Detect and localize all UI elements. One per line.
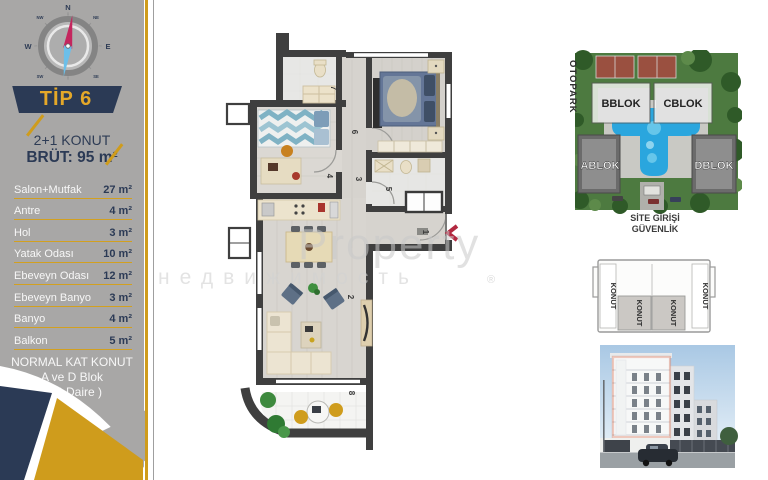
compass-icon: N S E W NE NW SE SW (22, 2, 114, 94)
otopark-label: OTOPARK (567, 60, 578, 114)
room-number-3: 3 (354, 177, 363, 182)
room-name: Salon+Mutfak (14, 184, 82, 196)
room-number-8: 8 (347, 391, 356, 396)
room-area: 12 m² (103, 270, 132, 282)
unit-type-label: TİP 6 (40, 88, 92, 111)
entrance-arrow-icon (448, 226, 457, 240)
room-number-4: 4 (325, 174, 334, 179)
corner-fan-decoration (0, 350, 156, 480)
room-name: Balkon (14, 335, 48, 347)
floor-key-plan: KONUT KONUT KONUT KONUT (588, 252, 720, 340)
compass-se: SE (93, 74, 99, 79)
block-a-label: ABLOK (580, 160, 619, 172)
key-konut-mid1: KONUT (635, 300, 644, 327)
building-render (598, 343, 738, 473)
compass-w: W (24, 42, 32, 51)
room-area: 3 m² (109, 292, 132, 304)
block-d-label: DBLOK (694, 160, 733, 172)
site-plan: BBLOK CBLOK ABLOK DBLOK OTOPARK SİTE GİR… (556, 50, 742, 242)
room-number-6: 6 (350, 130, 359, 135)
table-row: Antre 4 m² (14, 199, 132, 221)
security-label: GÜVENLİK (632, 224, 679, 234)
room-name: Ebeveyn Banyo (14, 292, 91, 304)
room-number-1: 1 (421, 230, 430, 235)
table-row: Yatak Odası 10 m² (14, 242, 132, 264)
table-row: Balkon 5 m² (14, 328, 132, 350)
compass-e: E (105, 42, 110, 51)
compass-nw: NW (37, 15, 44, 20)
room-number-5: 5 (384, 187, 393, 192)
key-konut-left: KONUT (609, 283, 618, 310)
unit-type-banner: TİP 6 (10, 86, 122, 113)
car (638, 449, 678, 462)
room-number-7: 7 (329, 86, 338, 91)
room-area: 4 m² (109, 205, 132, 217)
highlighted-facade (613, 357, 670, 437)
unit-subtitle: 2+1 KONUT (0, 132, 144, 148)
compass-ne: NE (93, 15, 99, 20)
divider-gold (145, 0, 148, 480)
room-name: Banyo (14, 313, 45, 325)
room-name: Yatak Odası (14, 248, 74, 260)
table-row: Banyo 4 m² (14, 307, 132, 329)
room-name: Ebeveyn Odası (14, 270, 89, 282)
compass-n: N (65, 3, 70, 12)
room-name: Hol (14, 227, 31, 239)
room-name: Antre (14, 205, 40, 217)
key-konut-mid2: KONUT (669, 300, 678, 327)
room-area: 10 m² (103, 248, 132, 260)
room-number-2: 2 (346, 295, 355, 300)
watermark-reg-icon: ® (487, 274, 495, 286)
room-area: 5 m² (109, 335, 132, 347)
divider-gray (153, 0, 154, 480)
compass-sw: SW (37, 74, 44, 79)
table-row: Hol 3 m² (14, 220, 132, 242)
room-area: 3 m² (109, 227, 132, 239)
table-row: Ebeveyn Odası 12 m² (14, 263, 132, 285)
table-row: Ebeveyn Banyo 3 m² (14, 285, 132, 307)
gross-area: BRÜT: 95 m² (0, 149, 144, 167)
key-konut-right: KONUT (701, 283, 710, 310)
floor-plan: 1 2 3 4 5 6 7 8 (215, 20, 475, 465)
site-entrance-label: SİTE GİRİŞİ (630, 213, 680, 223)
brochure-page: N S E W NE NW SE SW TİP 6 2+1 KONUT BRÜT… (0, 0, 768, 480)
room-area-table: Salon+Mutfak 27 m² Antre 4 m² Hol 3 m² Y… (14, 177, 132, 350)
block-c-label: CBLOK (663, 98, 702, 110)
room-area: 27 m² (103, 184, 132, 196)
room-area: 4 m² (109, 313, 132, 325)
block-b-label: BBLOK (601, 98, 640, 110)
table-row: Salon+Mutfak 27 m² (14, 177, 132, 199)
